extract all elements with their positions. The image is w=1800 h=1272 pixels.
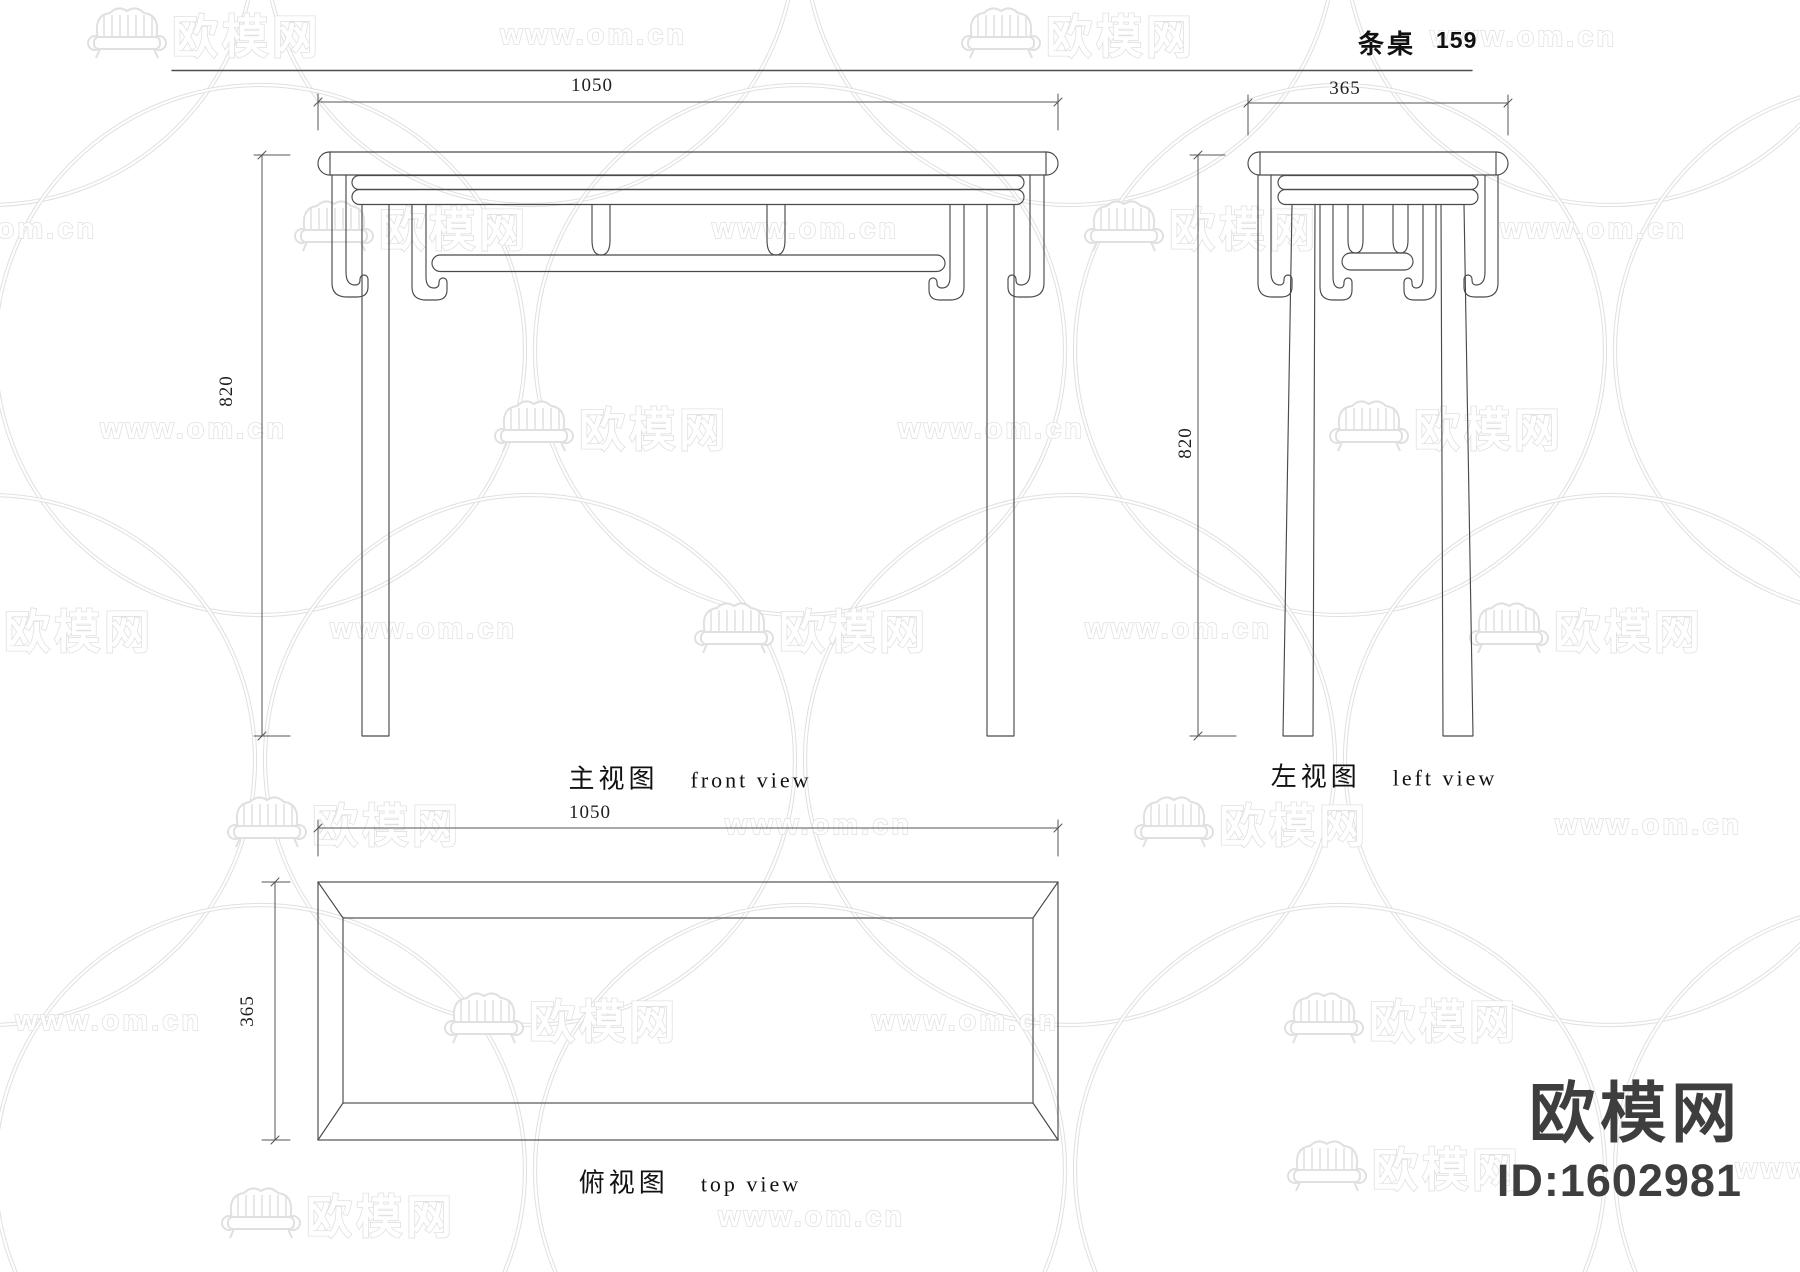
front-table-top	[318, 152, 1058, 175]
top-view-drawing	[262, 820, 1062, 1144]
top-dim-width-label: 1050	[569, 802, 611, 824]
front-dim-height-label: 820	[216, 375, 238, 407]
left-table-top	[1248, 152, 1508, 175]
front-spandrel-hooks	[332, 175, 1044, 300]
front-struts	[592, 205, 785, 256]
left-stacked-rails	[1278, 176, 1478, 205]
left-spandrel-hooks	[1258, 175, 1498, 300]
top-inner-panel	[343, 918, 1033, 1103]
cad-drawing-page: 欧模网www.om.cn欧模网www.om.cnwww.om.cn欧模网www.…	[0, 0, 1800, 1272]
front-view-label-cn: 主视图	[568, 759, 658, 796]
left-struts	[1348, 205, 1408, 254]
left-view-drawing	[1190, 95, 1512, 740]
left-legs	[1283, 205, 1473, 737]
left-view-label: 左视图 left view	[1271, 757, 1498, 794]
site-logo-block: 欧模网 ID:1602981	[1497, 1080, 1742, 1203]
top-view-label-cn: 俯视图	[579, 1163, 669, 1200]
top-outer-edge	[318, 882, 1058, 1140]
top-view-label: 俯视图 top view	[579, 1163, 801, 1200]
model-id-text: ID:1602981	[1497, 1158, 1742, 1203]
front-dim-width	[314, 94, 1062, 130]
left-dim-width	[1244, 95, 1512, 135]
left-view-label-cn: 左视图	[1271, 757, 1361, 794]
front-view-label: 主视图 front view	[568, 759, 811, 796]
front-legs	[362, 205, 1014, 737]
front-dim-height	[254, 151, 290, 740]
front-dim-width-label: 1050	[571, 75, 613, 97]
left-dim-width-label: 365	[1329, 78, 1361, 100]
site-logo-text: 欧模网	[1497, 1080, 1742, 1146]
front-stretcher	[432, 255, 945, 272]
top-corner-miters	[318, 882, 1058, 1140]
page-number: 159	[1436, 27, 1477, 54]
front-stacked-rails	[352, 176, 1024, 205]
top-dim-width	[314, 820, 1062, 856]
left-stretcher	[1342, 253, 1413, 270]
front-view-label-en: front view	[690, 768, 811, 794]
top-dim-depth-label: 365	[237, 995, 259, 1027]
top-view-label-en: top view	[701, 1172, 801, 1198]
left-view-label-en: left view	[1393, 766, 1498, 792]
left-dim-height-label: 820	[1175, 427, 1197, 459]
front-view-drawing	[254, 94, 1062, 740]
top-dim-depth	[262, 878, 290, 1144]
page-title: 条桌	[1358, 24, 1416, 61]
